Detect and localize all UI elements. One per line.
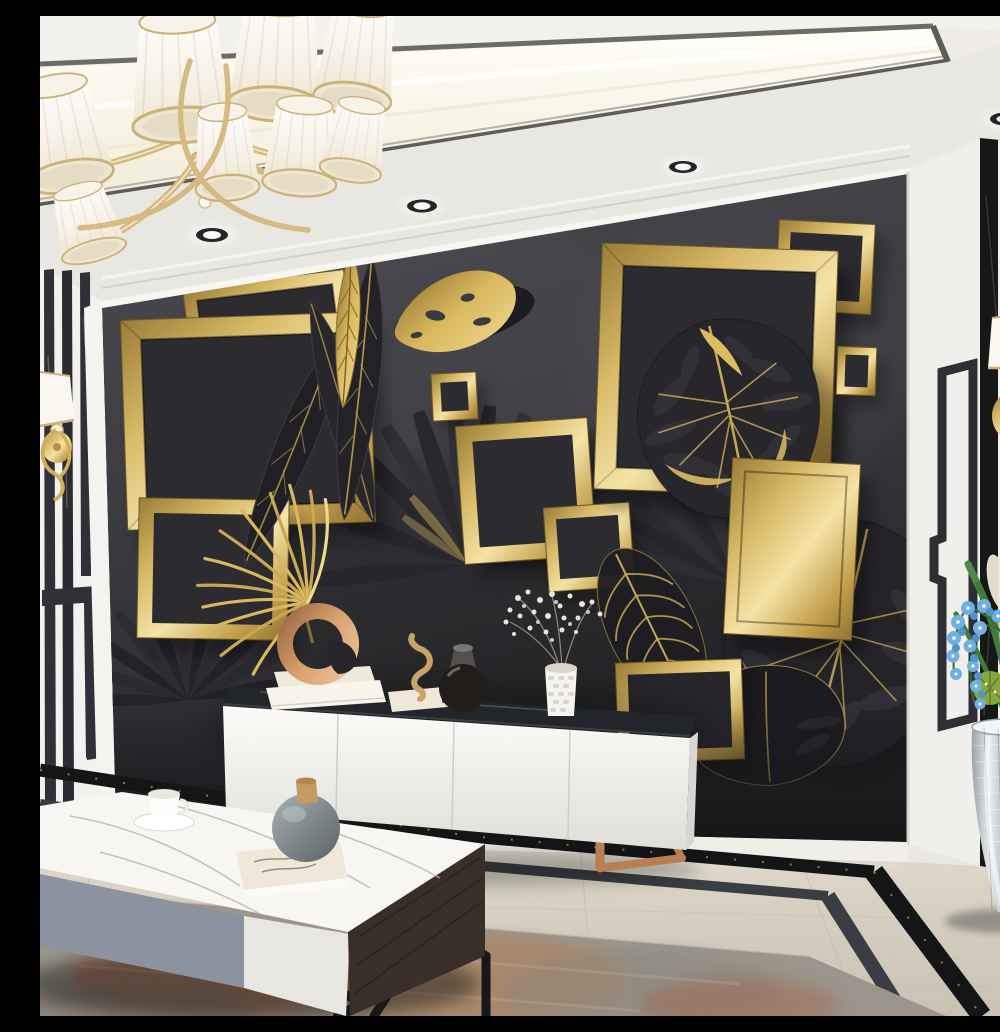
downlight bbox=[662, 158, 704, 176]
marble-stripe bbox=[62, 270, 74, 804]
downlight bbox=[188, 225, 236, 245]
room-scene bbox=[40, 16, 1000, 1016]
gold-frame bbox=[723, 458, 873, 657]
marble-stripe bbox=[44, 269, 56, 806]
decanter-lip bbox=[453, 644, 473, 652]
sconce-shade bbox=[40, 372, 74, 426]
living-room-photo: Photorealistic interior: white coved cei… bbox=[40, 16, 1000, 1016]
grey-vase bbox=[272, 794, 340, 862]
downlight bbox=[400, 197, 444, 215]
decanter-body bbox=[439, 664, 487, 712]
